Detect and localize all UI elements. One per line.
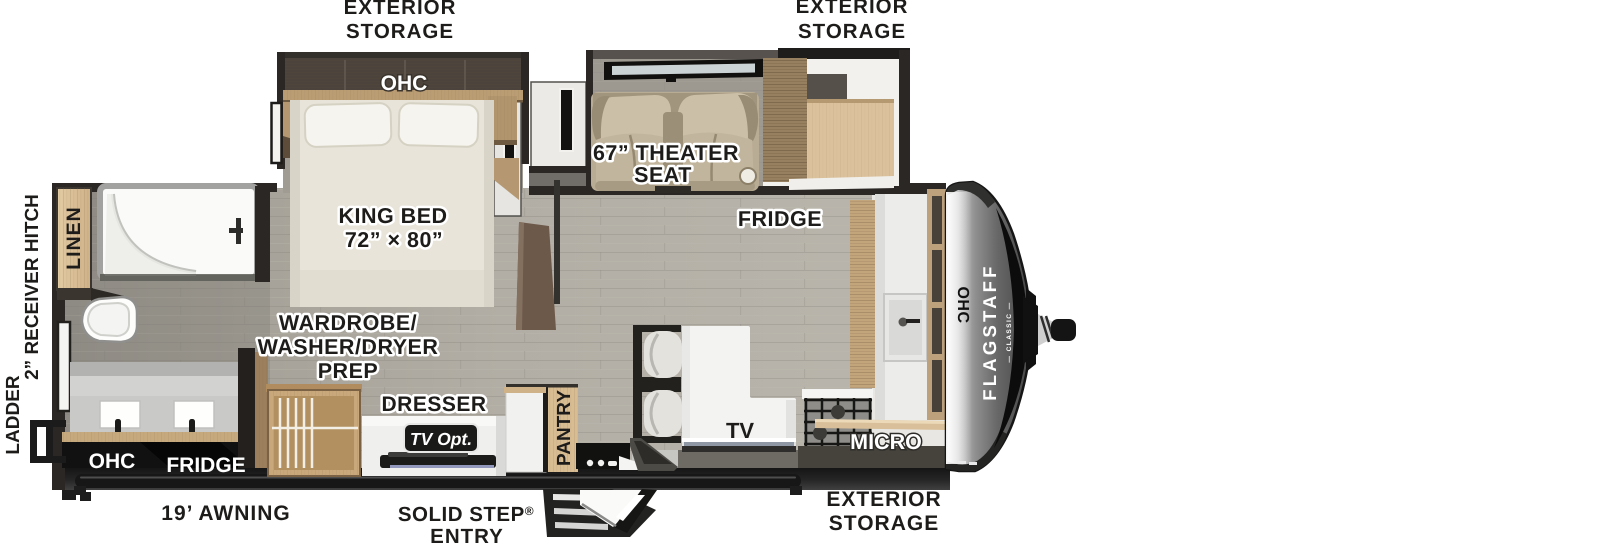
svg-text:EXTERIOR: EXTERIOR	[826, 488, 941, 511]
svg-text:SOLID STEP®: SOLID STEP®	[398, 503, 534, 526]
svg-text:LADDER: LADDER	[3, 375, 24, 454]
svg-text:EXTERIOR: EXTERIOR	[344, 0, 457, 19]
svg-text:DRESSER: DRESSER	[381, 393, 486, 416]
svg-text:FRIDGE: FRIDGE	[166, 454, 245, 477]
svg-text:OHC: OHC	[954, 286, 971, 323]
svg-text:STORAGE: STORAGE	[346, 20, 454, 43]
svg-text:PANTRY: PANTRY	[554, 390, 575, 466]
svg-text:KING BED: KING BED	[338, 204, 447, 228]
svg-text:EXTERIOR: EXTERIOR	[796, 0, 909, 18]
svg-text:WARDROBE/: WARDROBE/	[279, 311, 417, 335]
svg-text:PREP: PREP	[318, 359, 379, 383]
svg-text:TV Opt.: TV Opt.	[410, 429, 472, 449]
svg-text:2” RECEIVER HITCH: 2” RECEIVER HITCH	[22, 194, 43, 380]
svg-text:72” × 80”: 72” × 80”	[345, 228, 443, 252]
svg-text:FLAGSTAFF: FLAGSTAFF	[979, 263, 1000, 400]
svg-text:STORAGE: STORAGE	[798, 20, 906, 43]
svg-text:OHC: OHC	[381, 72, 428, 95]
svg-text:67” THEATER: 67” THEATER	[593, 141, 739, 165]
svg-text:LINEN: LINEN	[63, 206, 85, 270]
svg-text:SEAT: SEAT	[634, 163, 692, 187]
svg-text:WASHER/DRYER: WASHER/DRYER	[258, 335, 439, 359]
svg-text:FRIDGE: FRIDGE	[738, 207, 822, 231]
svg-text:MICRO: MICRO	[850, 430, 922, 454]
svg-text:TV: TV	[726, 418, 754, 443]
svg-text:ENTRY: ENTRY	[430, 525, 504, 548]
svg-text:19’ AWNING: 19’ AWNING	[161, 502, 290, 525]
svg-text:STORAGE: STORAGE	[829, 512, 939, 535]
svg-text:— CLASSIC —: — CLASSIC —	[1006, 301, 1013, 362]
svg-text:OHC: OHC	[89, 450, 136, 473]
